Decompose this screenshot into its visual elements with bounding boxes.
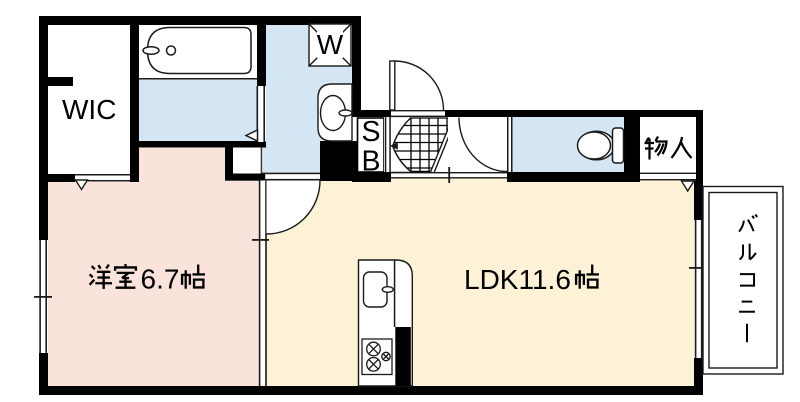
svg-text:6.7: 6.7: [141, 264, 180, 295]
svg-text:W: W: [317, 29, 344, 60]
svg-text:LDK11.6: LDK11.6: [464, 264, 571, 295]
svg-text:B: B: [361, 146, 380, 178]
svg-text:S: S: [361, 116, 380, 148]
svg-text:WIC: WIC: [62, 94, 116, 125]
